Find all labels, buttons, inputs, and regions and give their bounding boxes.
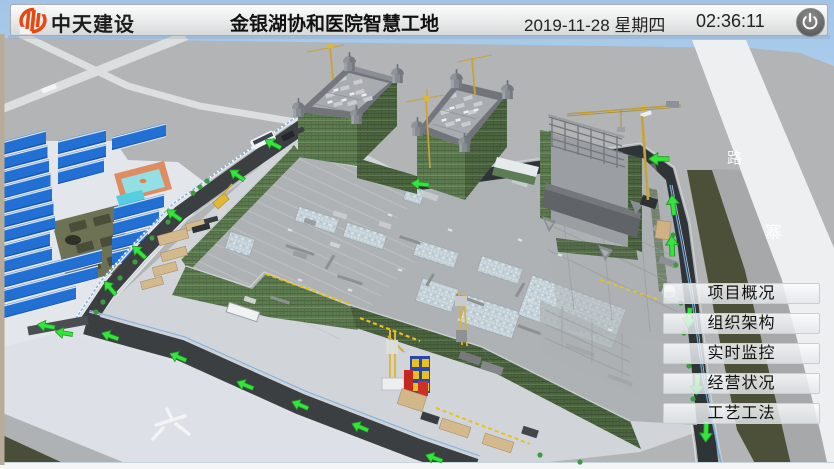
svg-text:路: 路 [727, 150, 742, 167]
svg-text:寨: 寨 [765, 223, 782, 242]
